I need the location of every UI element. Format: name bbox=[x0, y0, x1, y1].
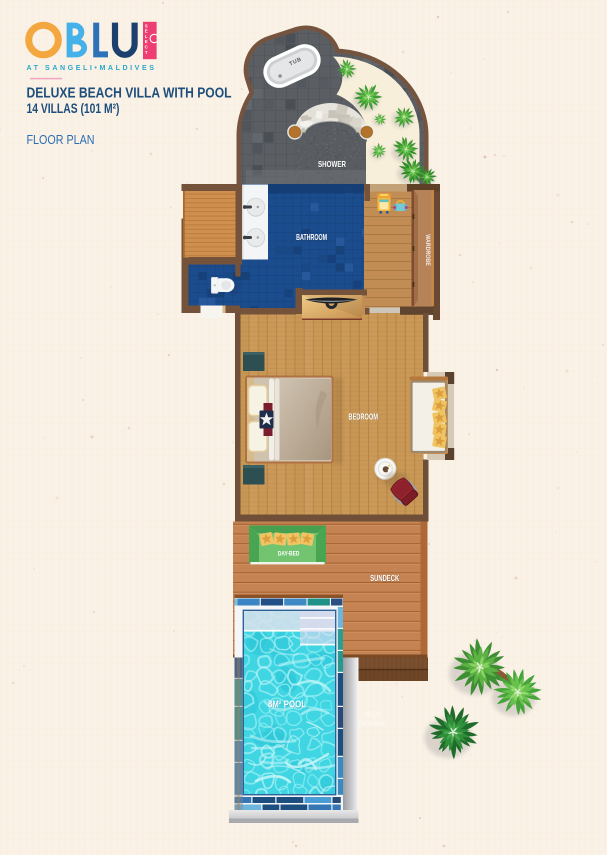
svg-text:BEDROOM: BEDROOM bbox=[349, 411, 379, 421]
svg-text:DELUXE BEACH VILLA WITH POOL: DELUXE BEACH VILLA WITH POOL bbox=[27, 86, 232, 102]
svg-text:ENTRANCE: ENTRANCE bbox=[359, 719, 386, 728]
svg-text:SHOWER: SHOWER bbox=[318, 160, 346, 169]
svg-text:VILLA: VILLA bbox=[364, 710, 380, 719]
svg-text:FLOOR PLAN: FLOOR PLAN bbox=[27, 132, 95, 147]
svg-text:WARDROBE: WARDROBE bbox=[424, 234, 431, 266]
svg-text:T: T bbox=[145, 50, 148, 55]
svg-text:L: L bbox=[145, 34, 148, 39]
svg-text:14 VILLAS (101 M²): 14 VILLAS (101 M²) bbox=[27, 101, 120, 116]
svg-text:SUNDECK: SUNDECK bbox=[370, 573, 400, 583]
svg-text:BATHROOM: BATHROOM bbox=[296, 233, 327, 242]
svg-text:DAY-BED: DAY-BED bbox=[278, 550, 300, 557]
svg-text:E: E bbox=[145, 39, 148, 44]
svg-text:8M² POOL: 8M² POOL bbox=[268, 699, 306, 711]
svg-text:AT SANGELI•MALDIVES: AT SANGELI•MALDIVES bbox=[27, 63, 157, 72]
svg-text:S: S bbox=[145, 23, 148, 28]
svg-text:E: E bbox=[145, 29, 148, 34]
